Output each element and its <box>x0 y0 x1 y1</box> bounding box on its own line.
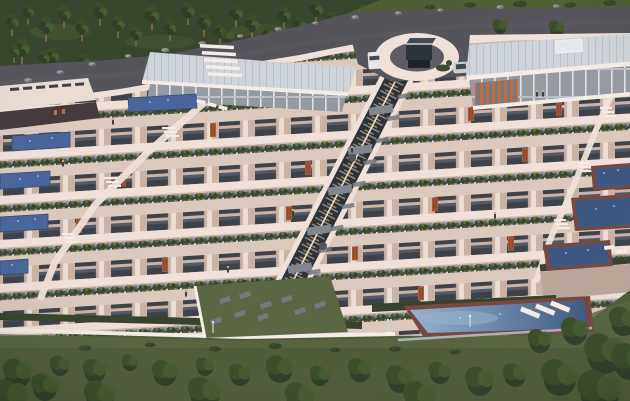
render-canvas: Terraced residential complex — aerial du… <box>0 0 630 401</box>
dusk-vignette <box>0 0 630 401</box>
architectural-render: Terraced residential complex — aerial du… <box>0 0 630 401</box>
